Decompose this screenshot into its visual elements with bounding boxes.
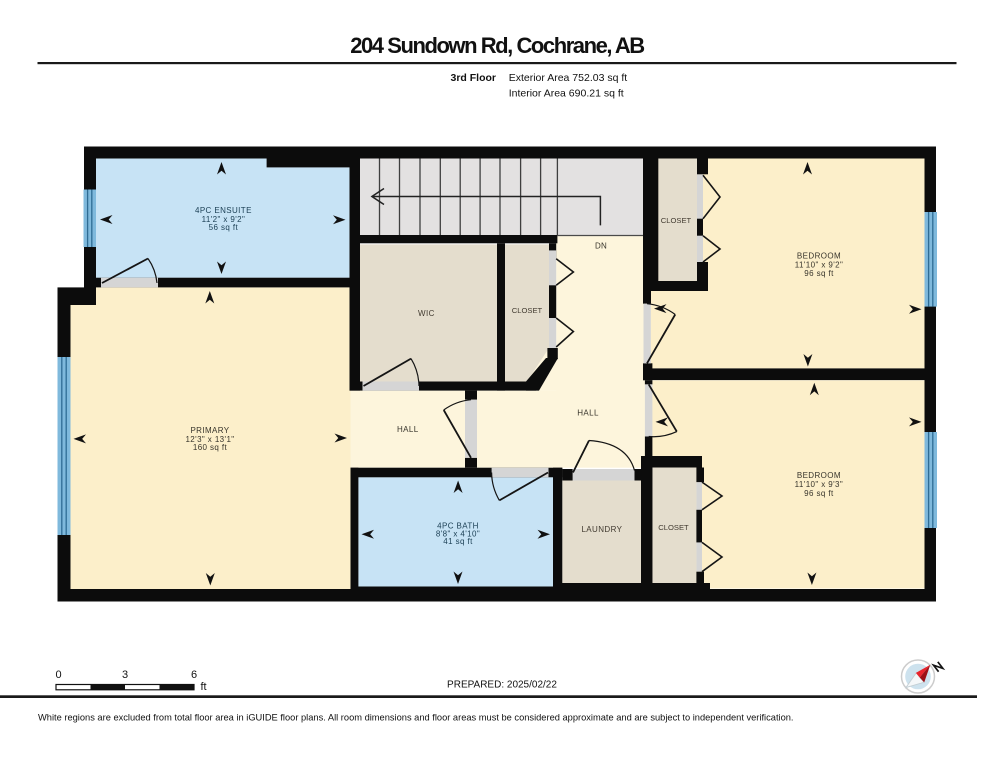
- svg-text:6: 6: [191, 669, 197, 681]
- svg-text:HALL: HALL: [397, 425, 419, 434]
- svg-text:CLOSET: CLOSET: [658, 523, 689, 532]
- svg-text:Interior Area 690.21 sq ft: Interior Area 690.21 sq ft: [509, 87, 624, 99]
- svg-text:0: 0: [55, 669, 61, 681]
- svg-text:56 sq ft: 56 sq ft: [209, 223, 239, 232]
- svg-text:BEDROOM: BEDROOM: [797, 471, 841, 480]
- svg-text:96 sq ft: 96 sq ft: [804, 489, 834, 498]
- svg-text:HALL: HALL: [577, 409, 599, 418]
- svg-text:CLOSET: CLOSET: [512, 306, 543, 315]
- svg-text:White regions are excluded fro: White regions are excluded from total fl…: [38, 713, 794, 723]
- svg-text:96 sq ft: 96 sq ft: [804, 269, 834, 278]
- svg-text:BEDROOM: BEDROOM: [797, 252, 841, 261]
- svg-text:PREPARED: 2025/02/22: PREPARED: 2025/02/22: [447, 680, 557, 691]
- svg-text:DN: DN: [595, 241, 607, 250]
- svg-text:Exterior Area 752.03 sq ft: Exterior Area 752.03 sq ft: [509, 72, 628, 84]
- svg-text:160 sq ft: 160 sq ft: [193, 443, 228, 452]
- svg-text:CLOSET: CLOSET: [661, 216, 692, 225]
- svg-text:ft: ft: [201, 681, 207, 693]
- svg-text:3rd Floor: 3rd Floor: [450, 72, 496, 84]
- svg-text:41 sq ft: 41 sq ft: [443, 537, 473, 546]
- svg-text:11'10" x 9'3": 11'10" x 9'3": [795, 480, 843, 489]
- svg-text:4PC ENSUITE: 4PC ENSUITE: [195, 206, 252, 215]
- svg-text:PRIMARY: PRIMARY: [190, 426, 229, 435]
- svg-text:3: 3: [122, 669, 128, 681]
- svg-text:204 Sundown Rd, Cochrane, AB: 204 Sundown Rd, Cochrane, AB: [350, 33, 644, 58]
- svg-text:WIC: WIC: [418, 309, 435, 318]
- svg-text:LAUNDRY: LAUNDRY: [581, 525, 622, 534]
